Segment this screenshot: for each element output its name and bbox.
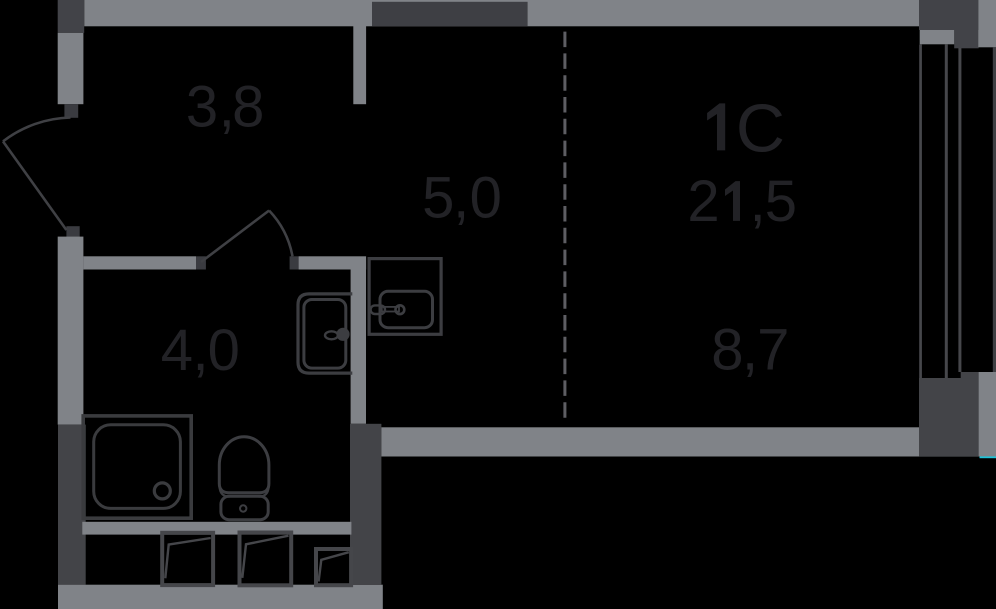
svg-text:,: , (750, 169, 766, 234)
svg-text:0: 0 (208, 318, 240, 383)
svg-text:3: 3 (186, 74, 218, 139)
svg-text:8: 8 (711, 318, 743, 383)
svg-text:,: , (192, 318, 208, 383)
svg-text:5: 5 (765, 169, 797, 234)
svg-text:C: C (736, 90, 785, 166)
svg-text:0: 0 (470, 165, 502, 230)
svg-text:2: 2 (687, 169, 719, 234)
svg-text:5: 5 (422, 165, 454, 230)
svg-text:8: 8 (232, 74, 264, 139)
svg-text:,: , (453, 165, 469, 230)
svg-text:,: , (742, 318, 758, 383)
svg-text:7: 7 (757, 318, 789, 383)
svg-text:4: 4 (161, 318, 193, 383)
